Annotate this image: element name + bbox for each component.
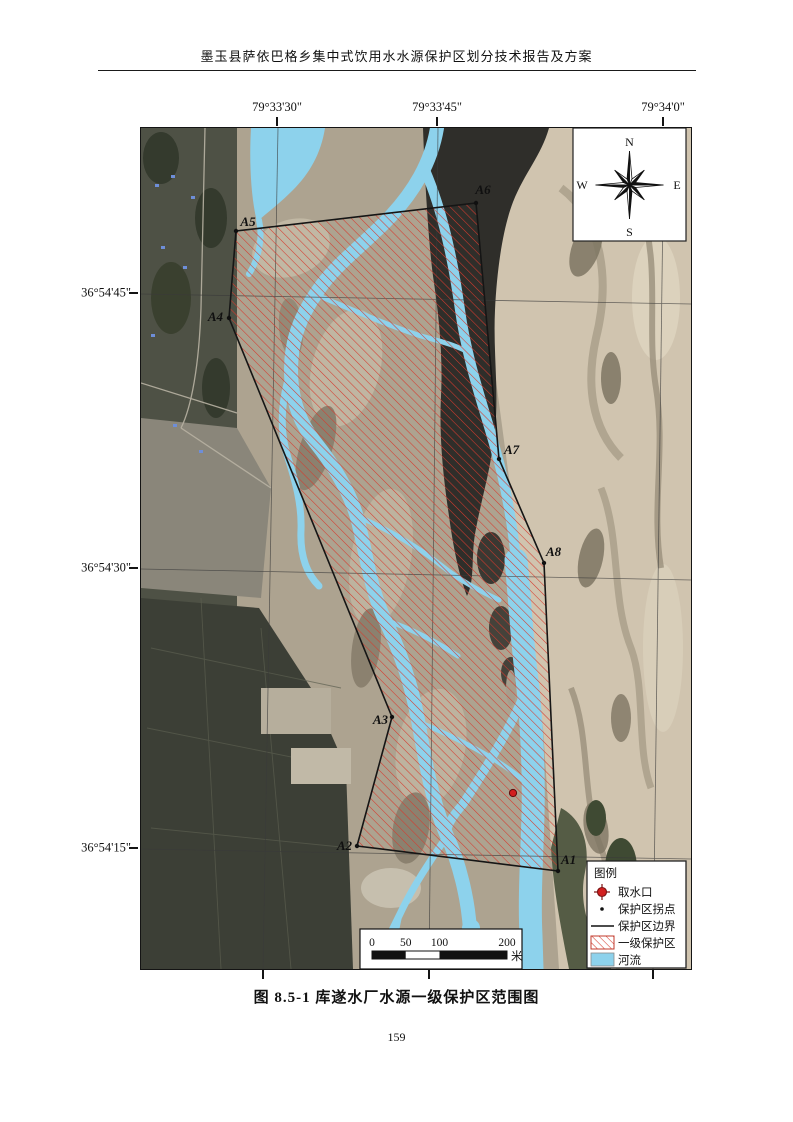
water-intake-marker	[509, 789, 516, 796]
page-number: 159	[0, 1030, 793, 1045]
map-figure: 79°33'30" 79°33'45" 79°34'0" 36°54'45" 3…	[0, 0, 793, 1122]
figure-caption: 图 8.5-1 库遂水厂水源一级保护区范围图	[0, 986, 793, 1007]
vertex-label-a1: A1	[560, 852, 576, 867]
left-tick	[129, 847, 138, 849]
legend-title: 图例	[594, 866, 617, 880]
vertex-label-a3: A3	[372, 712, 389, 727]
vertex-label-a5: A5	[239, 214, 256, 229]
latitude-label: 36°54'15"	[81, 841, 131, 856]
satellite-imagery: A1 A2 A3 A4 A5 A6 A7 A8	[141, 128, 691, 969]
scale-tick-100: 100	[431, 937, 449, 949]
legend-river-symbol	[591, 953, 614, 966]
scale-tick-50: 50	[400, 937, 412, 949]
compass-west-label: W	[576, 178, 588, 192]
legend-item-zone: 一级保护区	[618, 936, 676, 950]
bottom-tick	[428, 970, 430, 979]
vertex-label-a4: A4	[207, 309, 224, 324]
latitude-label: 36°54'30"	[81, 561, 131, 576]
bottom-tick	[262, 970, 264, 979]
longitude-label: 79°34'0"	[641, 100, 685, 115]
compass-south-label: S	[626, 225, 633, 239]
compass-east-label: E	[673, 178, 680, 192]
top-tick	[436, 117, 438, 126]
satellite-map: A1 A2 A3 A4 A5 A6 A7 A8	[141, 128, 691, 969]
legend-item-boundary: 保护区边界	[618, 919, 676, 933]
left-tick	[129, 292, 138, 294]
longitude-label: 79°33'45"	[412, 100, 462, 115]
legend-item-vertex: 保护区拐点	[618, 902, 676, 916]
report-page: 墨玉县萨依巴格乡集中式饮用水水源保护区划分技术报告及方案 79°33'30" 7…	[0, 0, 793, 1122]
legend-zone-symbol	[591, 936, 614, 949]
legend-item-intake: 取水口	[618, 886, 653, 899]
scale-unit: 米	[511, 950, 523, 963]
vertex-label-a7: A7	[503, 442, 520, 457]
vertex-label-a6: A6	[474, 182, 491, 197]
longitude-label: 79°33'30"	[252, 100, 302, 115]
top-tick	[662, 117, 664, 126]
vertex-label-a2: A2	[336, 838, 353, 853]
legend-item-river: 河流	[618, 953, 641, 967]
vertex-label-a8: A8	[545, 544, 562, 559]
legend-vertex-symbol	[600, 907, 604, 911]
map-frame: A1 A2 A3 A4 A5 A6 A7 A8	[140, 127, 692, 970]
bottom-tick	[652, 970, 654, 979]
scale-bar: 0 50 100 200 米	[360, 929, 523, 969]
left-tick	[129, 567, 138, 569]
scale-tick-200: 200	[498, 937, 516, 949]
compass-rose: N S W E	[573, 128, 686, 241]
top-tick	[276, 117, 278, 126]
scale-tick-0: 0	[369, 937, 375, 949]
compass-north-label: N	[625, 135, 634, 149]
latitude-label: 36°54'45"	[81, 286, 131, 301]
legend: 图例 取水口 保护区拐点 保护区边界	[587, 861, 686, 968]
